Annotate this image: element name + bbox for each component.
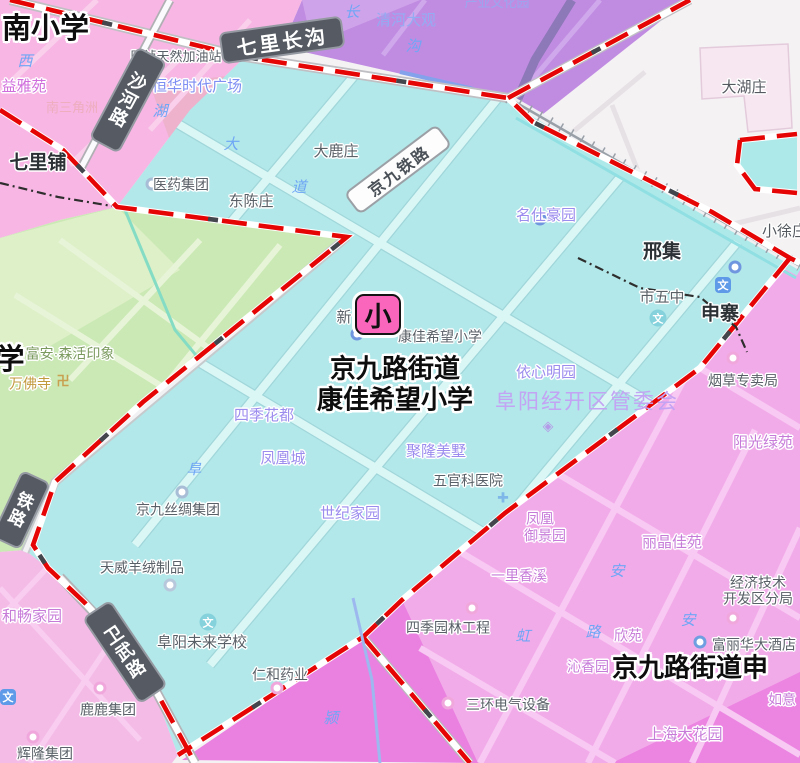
- poi-label[interactable]: 辉隆集团: [17, 746, 73, 761]
- poi-label[interactable]: 京九丝绸集团: [136, 502, 220, 517]
- district-name-neighbor: 南小学: [2, 14, 89, 46]
- residence-label[interactable]: 沁香园: [567, 659, 609, 674]
- school-icon[interactable]: 文: [650, 310, 667, 327]
- map-viewport[interactable]: 文 文 文 文 ✚ ◈ 卍 七里长沟 京九铁路 沙 河 路 卫 武 路 铁 路 …: [0, 0, 800, 763]
- temple-label[interactable]: 万佛寺: [9, 376, 51, 391]
- company-icon[interactable]: [727, 352, 740, 365]
- government-label[interactable]: 阜阳经开区管委会: [495, 390, 679, 413]
- temple-icon[interactable]: 卍: [56, 371, 69, 390]
- residence-label[interactable]: 富安·森活印象: [26, 346, 115, 361]
- residence-label[interactable]: 凤凰: [526, 511, 554, 526]
- town-label[interactable]: 七里铺: [9, 154, 66, 175]
- residence-label[interactable]: 阳光绿苑: [733, 435, 793, 452]
- area-label[interactable]: 产业文化园: [464, 0, 529, 10]
- village-label[interactable]: 大鹿庄: [313, 144, 358, 161]
- water-char: 长: [344, 5, 359, 22]
- poi-label[interactable]: 三环电气设备: [466, 697, 550, 712]
- area-label: 南三角洲: [46, 101, 98, 115]
- residence-label[interactable]: 依心明园: [516, 365, 576, 382]
- poi-label[interactable]: 康佳希望小学: [398, 329, 482, 344]
- residence-label[interactable]: 名仕豪园: [516, 208, 576, 225]
- company-icon[interactable]: [727, 612, 740, 625]
- poi-label[interactable]: 鹿鹿集团: [80, 702, 136, 717]
- road-char: 阜: [186, 462, 201, 479]
- town-label[interactable]: 邢集: [643, 243, 681, 264]
- poi-label[interactable]: 经济技术: [730, 575, 786, 590]
- school-marker[interactable]: 小: [355, 294, 401, 335]
- residence-label[interactable]: 聚隆美墅: [406, 444, 466, 461]
- town-label[interactable]: 申寨: [701, 305, 739, 326]
- village-label[interactable]: 大湖庄: [721, 80, 766, 97]
- poi-label[interactable]: 医药集团: [153, 177, 209, 192]
- road-char: 虹: [515, 629, 530, 646]
- residence-label[interactable]: 欣苑: [614, 628, 642, 643]
- district-name-neighbor: 学: [0, 345, 25, 377]
- residence-label[interactable]: 凤凰城: [260, 451, 305, 468]
- residence-label[interactable]: 上海大花园: [647, 727, 722, 744]
- road-char: 湖: [152, 104, 167, 121]
- residence-label[interactable]: 和畅家园: [2, 609, 62, 626]
- poi-label[interactable]: 五官科医院: [433, 473, 503, 488]
- village-label[interactable]: 小徐庄: [762, 224, 800, 241]
- school-icon[interactable]: 文: [715, 277, 731, 293]
- company-icon[interactable]: [442, 697, 455, 710]
- poi-label[interactable]: 四季园林工程: [406, 620, 490, 635]
- water-char: 沟: [405, 39, 420, 56]
- company-icon[interactable]: [271, 682, 284, 695]
- poi-label[interactable]: 仁和药业: [252, 667, 308, 682]
- district-title-line1: 京九路街道: [330, 355, 460, 384]
- company-icon[interactable]: [466, 602, 479, 615]
- school-icon[interactable]: 文: [0, 689, 16, 705]
- company-icon[interactable]: [164, 579, 177, 592]
- hotel-icon[interactable]: [694, 636, 707, 649]
- school-icon[interactable]: 文: [200, 614, 217, 631]
- poi-label[interactable]: 恒华时代广场: [152, 79, 242, 96]
- poi-label[interactable]: 富丽华大酒店: [712, 637, 796, 652]
- area-label[interactable]: 清河大观: [376, 13, 436, 30]
- road-char: 西: [17, 54, 32, 71]
- poi-label[interactable]: 烟草专卖局: [708, 373, 778, 388]
- company-icon[interactable]: [176, 486, 189, 499]
- poi-label[interactable]: 天威羊绒制品: [100, 560, 184, 575]
- residence-label[interactable]: 四季花都: [234, 408, 294, 425]
- road-char: 道: [291, 180, 306, 197]
- road-char: 安: [680, 613, 695, 630]
- poi-label[interactable]: 阜阳未来学校: [157, 635, 247, 652]
- residence-label[interactable]: 丽晶佳苑: [642, 535, 702, 552]
- residence-label[interactable]: 益雅苑: [1, 79, 46, 96]
- government-icon[interactable]: ◈: [543, 418, 554, 435]
- district-title-line2: 康佳希望小学: [317, 386, 473, 415]
- poi-label[interactable]: 新: [336, 310, 351, 327]
- residence-label[interactable]: 御景园: [524, 528, 566, 543]
- company-icon[interactable]: [94, 682, 107, 695]
- hospital-icon[interactable]: ✚: [497, 490, 509, 507]
- residence-label[interactable]: 如意: [768, 692, 796, 707]
- poi-label[interactable]: 市五中: [639, 290, 684, 307]
- district-name-neighbor: 京九路街道申: [612, 654, 768, 683]
- residence-label[interactable]: 一里香溪: [491, 568, 547, 583]
- road-char: 大: [223, 137, 238, 154]
- station-icon[interactable]: [729, 261, 742, 274]
- poi-label[interactable]: 开发区分局: [723, 591, 793, 606]
- village-label[interactable]: 东陈庄: [228, 194, 273, 211]
- residence-label[interactable]: 世纪家园: [320, 506, 380, 523]
- water-char: 颍: [323, 711, 338, 728]
- road-char: 安: [609, 564, 624, 581]
- company-icon[interactable]: [27, 731, 40, 744]
- road-char: 路: [585, 625, 600, 642]
